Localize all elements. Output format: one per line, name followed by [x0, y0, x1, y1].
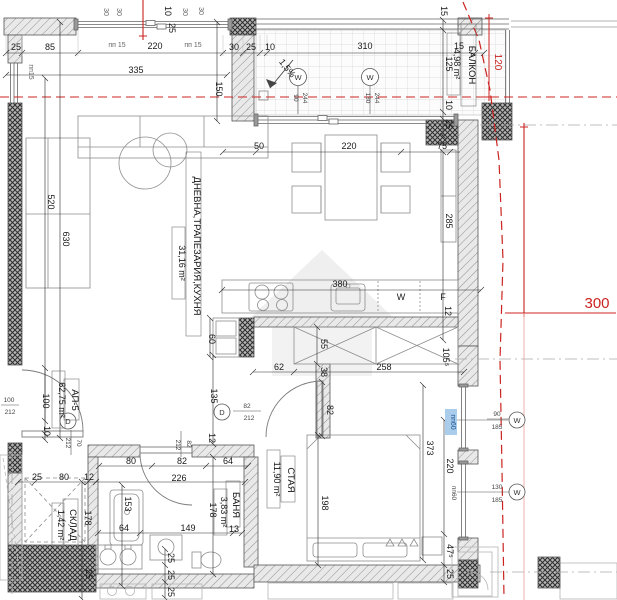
table-round	[119, 137, 171, 189]
room-name: СКЛАД	[67, 509, 78, 541]
dim-label: 25	[166, 553, 176, 563]
washer-label: W	[397, 292, 406, 302]
dim-label: 220	[445, 458, 455, 473]
dim-label: 60	[207, 334, 217, 344]
dim-label: 150	[214, 81, 224, 96]
dim-label: 380	[332, 279, 347, 289]
door-size: 82	[243, 403, 251, 410]
chair	[292, 186, 321, 213]
window-marker: W	[294, 73, 302, 82]
parapet-label: пп 15	[108, 42, 125, 49]
apartment-id: АП-5	[69, 389, 80, 411]
dim-label: 30	[181, 8, 188, 16]
window-marker: W	[513, 416, 521, 425]
room-area: 4,98 m²	[452, 49, 462, 80]
nightstand	[422, 537, 442, 555]
toilet	[192, 552, 201, 568]
dim-label: 12	[443, 306, 453, 316]
dim-label: 25	[166, 570, 176, 580]
chair	[292, 143, 321, 172]
pp60-label: пп60	[449, 414, 456, 429]
dim-label: 55	[319, 339, 329, 349]
dim-label: 10	[444, 100, 454, 110]
dim-label: 82	[177, 456, 187, 466]
dim-label: 25	[167, 23, 177, 33]
chair	[381, 143, 410, 172]
dim-label: 50	[254, 141, 264, 151]
room-area: 1,42 m²	[56, 510, 66, 541]
dim-label: 10	[265, 42, 275, 52]
window-size: 244	[373, 93, 380, 104]
dim-label: 100	[41, 393, 51, 408]
room-area: 11,90 m²	[272, 462, 282, 497]
room-area: 31,16 m²	[177, 245, 187, 281]
dim-label: 25	[11, 42, 21, 52]
dim-label: 25	[166, 587, 176, 597]
dim-label: 220	[147, 41, 162, 51]
dim-label: 30	[229, 42, 239, 52]
pillow	[363, 543, 407, 557]
dim-label: 85	[45, 42, 55, 52]
dim-label: 25	[84, 569, 94, 579]
dim-label: 630	[61, 231, 71, 246]
dim-label: 64	[223, 456, 233, 466]
floor-plan-drawing: 25 85 пп 15 220 пп 15 30 25 10 310 15 33…	[0, 0, 617, 600]
dim-label: 285	[444, 213, 454, 228]
dim-label: 38	[319, 367, 329, 377]
dim-label: 149	[180, 523, 195, 533]
dim-label: 30	[102, 8, 109, 16]
dim-label: 25	[32, 472, 42, 482]
window-size: 90	[292, 94, 299, 102]
fridge-label: F	[440, 292, 446, 302]
dim-label: 373	[425, 440, 435, 455]
dim-label: 30	[197, 7, 204, 15]
dim-label: 335	[128, 65, 143, 75]
dim-label: 80	[59, 472, 69, 482]
dim-label: 178	[208, 502, 218, 517]
dim-label: 258	[376, 362, 391, 372]
floor-plan-canvas: 25 85 пп 15 220 пп 15 30 25 10 310 15 33…	[0, 0, 617, 600]
dim-label: 10	[163, 6, 173, 16]
door-marker: D	[219, 408, 225, 417]
bath-door-leaf	[140, 447, 192, 453]
room-name: БАЛКОН	[466, 46, 477, 85]
dim-label: 178	[83, 510, 93, 525]
door-size: 212	[5, 409, 16, 416]
window-size: 130	[364, 93, 371, 104]
window-size: 185	[492, 424, 503, 431]
wardrobe	[26, 138, 90, 288]
dim-label: 64	[119, 523, 129, 533]
window-size: 244	[301, 93, 308, 104]
pp60-label: пп60	[450, 486, 457, 501]
window-size: 90	[493, 411, 501, 418]
dim-label: 82	[325, 405, 335, 415]
bath-vanity	[96, 545, 142, 569]
room-name: БАНЯ	[230, 492, 241, 518]
parapet-label: пп 15	[184, 42, 201, 49]
room-name: СТАЯ	[285, 467, 296, 492]
dim-label: 105⁵	[441, 348, 451, 367]
dim-label: 135	[209, 388, 219, 403]
dim-label: 25	[246, 42, 256, 52]
dim-label: 153	[123, 496, 133, 511]
window-size: 130	[492, 484, 503, 491]
dim-label: 520	[46, 194, 56, 209]
dim-label: 15	[439, 6, 449, 16]
dim-label: 25	[445, 569, 455, 579]
window-size: 185	[492, 497, 503, 504]
dim-label: 198	[320, 495, 330, 510]
dim-label: 13	[229, 524, 239, 534]
door-size: 82	[185, 440, 192, 448]
door-size: 70	[75, 439, 82, 447]
red-dim-label: 120	[492, 54, 503, 71]
room-name: ДНЕВНА,ТРАПЕЗАРИЯ,КУХНЯ	[191, 177, 202, 316]
dim-label: 75	[437, 141, 447, 151]
dim-label: 12	[84, 472, 94, 482]
chair	[381, 186, 410, 213]
window-marker: W	[513, 488, 521, 497]
dim-label: 80	[126, 456, 136, 466]
dim-label: 310	[357, 41, 372, 51]
dim-label: 62	[274, 362, 284, 372]
window-marker: W	[366, 73, 374, 82]
dim-label: 226	[171, 473, 186, 483]
door-size: 212	[244, 415, 255, 422]
door-marker: D	[65, 417, 71, 426]
dim-label: 12	[207, 433, 217, 443]
apartment-area: 62,75 m²	[57, 382, 67, 418]
door-size: 100	[4, 397, 15, 404]
door-size: 212	[64, 438, 71, 449]
dim-label: 10	[42, 426, 52, 436]
room-area: 3,83 m²	[219, 497, 229, 528]
dim-label: 220	[341, 141, 356, 151]
pillow	[313, 543, 357, 557]
parapet-label: пп15	[27, 64, 34, 79]
red-dim-label: 300	[584, 295, 609, 312]
door-size: 212	[174, 440, 181, 451]
dim-label: 25	[444, 119, 454, 129]
dim-label: 47⁵	[445, 544, 455, 558]
dim-label: 30	[115, 8, 122, 16]
